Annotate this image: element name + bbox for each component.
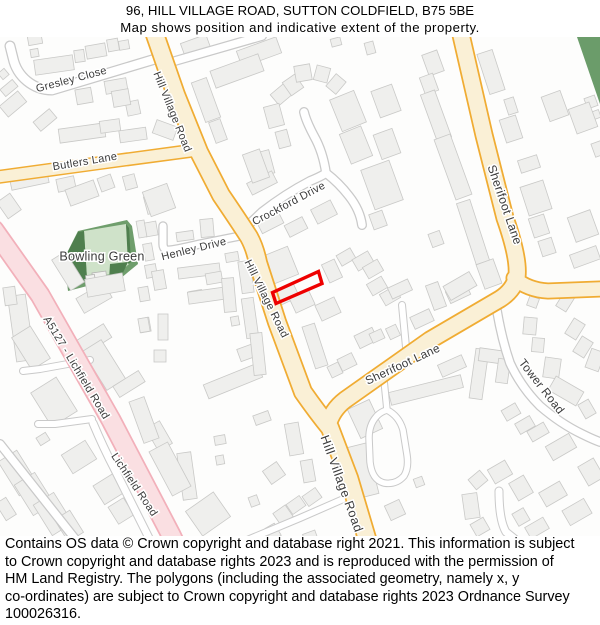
svg-text:Bowling Green: Bowling Green bbox=[59, 250, 144, 264]
